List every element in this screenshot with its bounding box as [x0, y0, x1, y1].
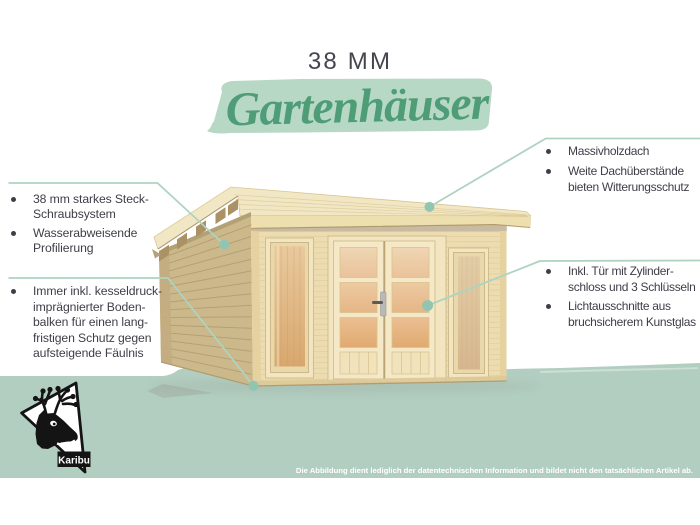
svg-text:Karibu: Karibu	[58, 456, 90, 467]
